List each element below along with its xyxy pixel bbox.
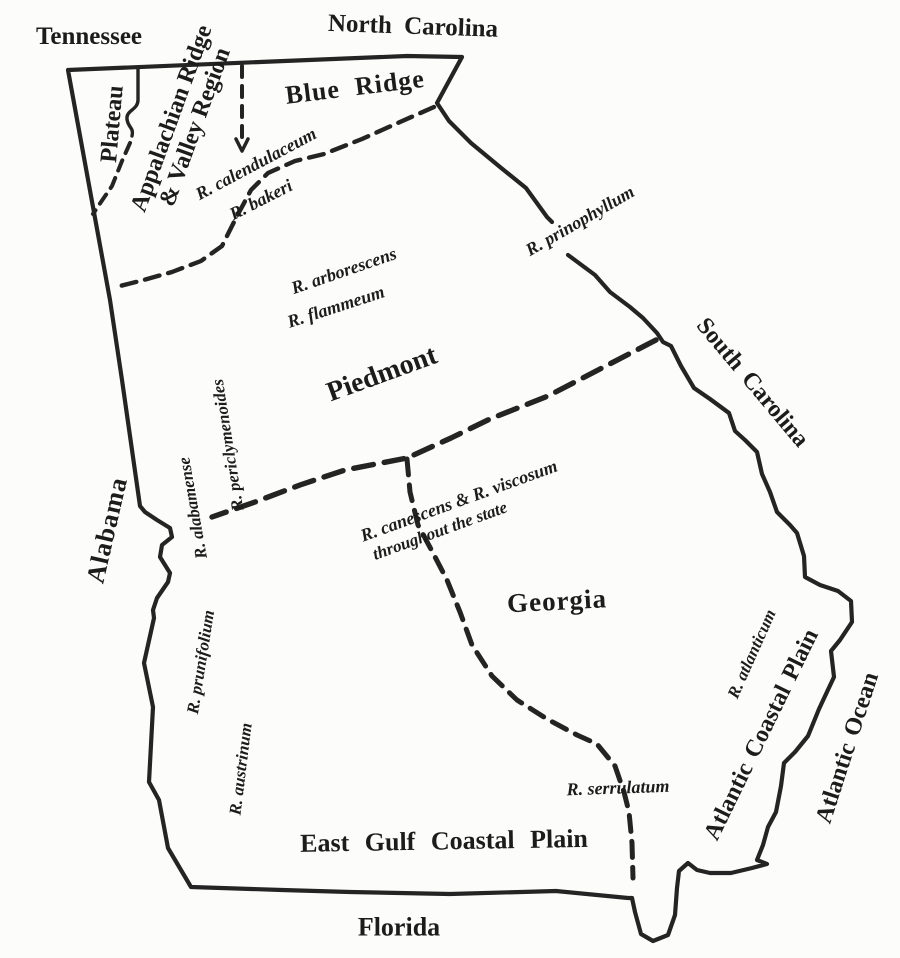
plateau-boundary-brace xyxy=(127,67,138,136)
label-georgia: Georgia xyxy=(506,584,607,618)
map: Tennessee North Carolina Blue Ridge Plat… xyxy=(0,0,900,958)
label-florida: Florida xyxy=(358,913,440,940)
label-tennessee: Tennessee xyxy=(36,24,142,50)
label-east-gulf-coastal-plain: East Gulf Coastal Plain xyxy=(300,825,588,857)
boundary-arrowhead xyxy=(236,139,248,151)
georgia-map-svg xyxy=(0,0,900,958)
species-label-serrulatum: R. serrulatum xyxy=(566,777,670,799)
